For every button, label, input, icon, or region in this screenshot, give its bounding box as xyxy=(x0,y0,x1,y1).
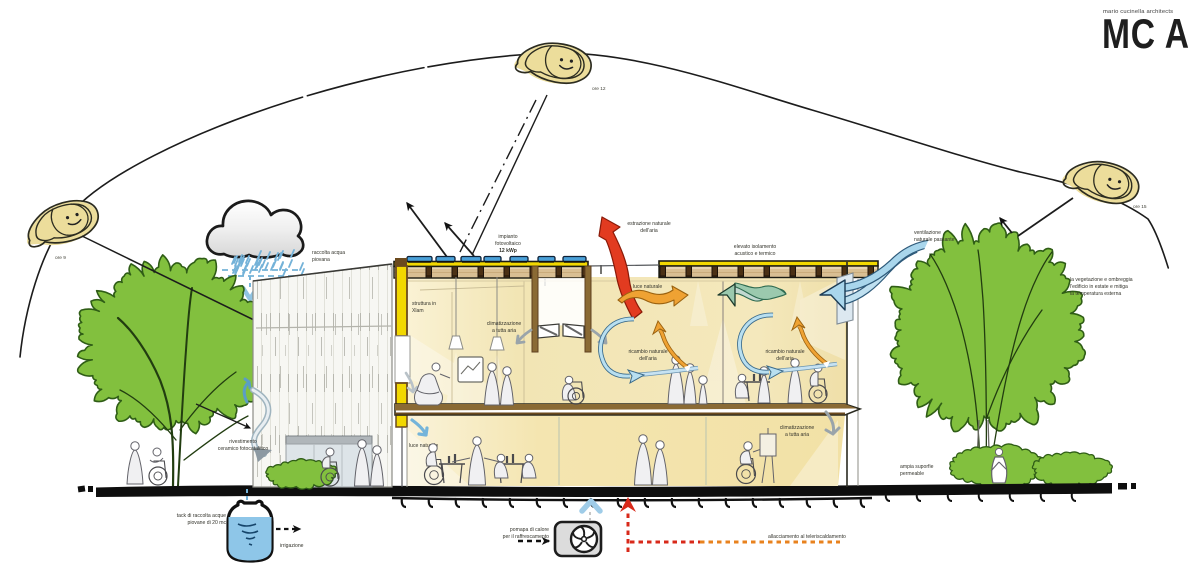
svg-text:piovana: piovana xyxy=(312,257,330,263)
svg-text:permeable: permeable xyxy=(900,471,924,477)
svg-text:estrazione naturale: estrazione naturale xyxy=(627,221,670,227)
svg-text:12 kWp: 12 kWp xyxy=(499,248,517,254)
svg-text:luce naturale: luce naturale xyxy=(633,284,662,290)
svg-text:fotovoltaico: fotovoltaico xyxy=(495,241,521,247)
svg-text:Xlam: Xlam xyxy=(412,308,424,314)
svg-text:a tutta aria: a tutta aria xyxy=(785,432,809,438)
svg-text:ore 9: ore 9 xyxy=(55,255,66,261)
svg-text:ricambio naturale: ricambio naturale xyxy=(628,349,667,355)
svg-text:irrigazione: irrigazione xyxy=(280,543,304,549)
svg-text:elevato isolamento: elevato isolamento xyxy=(734,244,777,250)
svg-text:la vegetazione e ombreggia: la vegetazione e ombreggia xyxy=(1070,277,1133,283)
svg-text:climatizzazione: climatizzazione xyxy=(487,321,522,327)
svg-text:pomapa di calore: pomapa di calore xyxy=(510,527,549,533)
svg-text:impianto: impianto xyxy=(498,234,517,240)
svg-text:l'edificio in estate e mitiga: l'edificio in estate e mitiga xyxy=(1070,284,1128,290)
svg-text:ampia suporfie: ampia suporfie xyxy=(900,464,934,470)
svg-text:dell'aria: dell'aria xyxy=(639,356,657,362)
svg-text:la temperatura esterna: la temperatura esterna xyxy=(1070,291,1121,297)
svg-text:ore 12: ore 12 xyxy=(592,86,606,92)
svg-text:naturale passante: naturale passante xyxy=(914,237,955,243)
svg-text:acustico e termico: acustico e termico xyxy=(734,251,775,257)
svg-text:raccolta acqua: raccolta acqua xyxy=(312,250,345,256)
svg-text:ventilazione: ventilazione xyxy=(914,230,941,236)
svg-text:rivestimento: rivestimento xyxy=(229,439,257,445)
svg-text:piovane di 20 mc: piovane di 20 mc xyxy=(187,520,226,526)
svg-text:ricambio naturale: ricambio naturale xyxy=(765,349,804,355)
svg-text:tack di raccolta acque: tack di raccolta acque xyxy=(177,513,226,519)
svg-text:ore 15: ore 15 xyxy=(1133,204,1147,210)
svg-text:MC A: MC A xyxy=(1102,12,1190,58)
svg-text:dell'aria: dell'aria xyxy=(776,356,794,362)
svg-text:dell'aria: dell'aria xyxy=(640,228,658,234)
svg-text:per il raffrescamento: per il raffrescamento xyxy=(503,534,550,540)
svg-text:allacciamento al teleriscaldam: allacciamento al teleriscaldamento xyxy=(768,534,846,540)
svg-text:struttura in: struttura in xyxy=(412,301,436,307)
svg-text:climatizzazione: climatizzazione xyxy=(780,425,815,431)
svg-text:a tutta aria: a tutta aria xyxy=(492,328,516,334)
svg-text:ceramico fotocatalitico: ceramico fotocatalitico xyxy=(218,446,269,452)
